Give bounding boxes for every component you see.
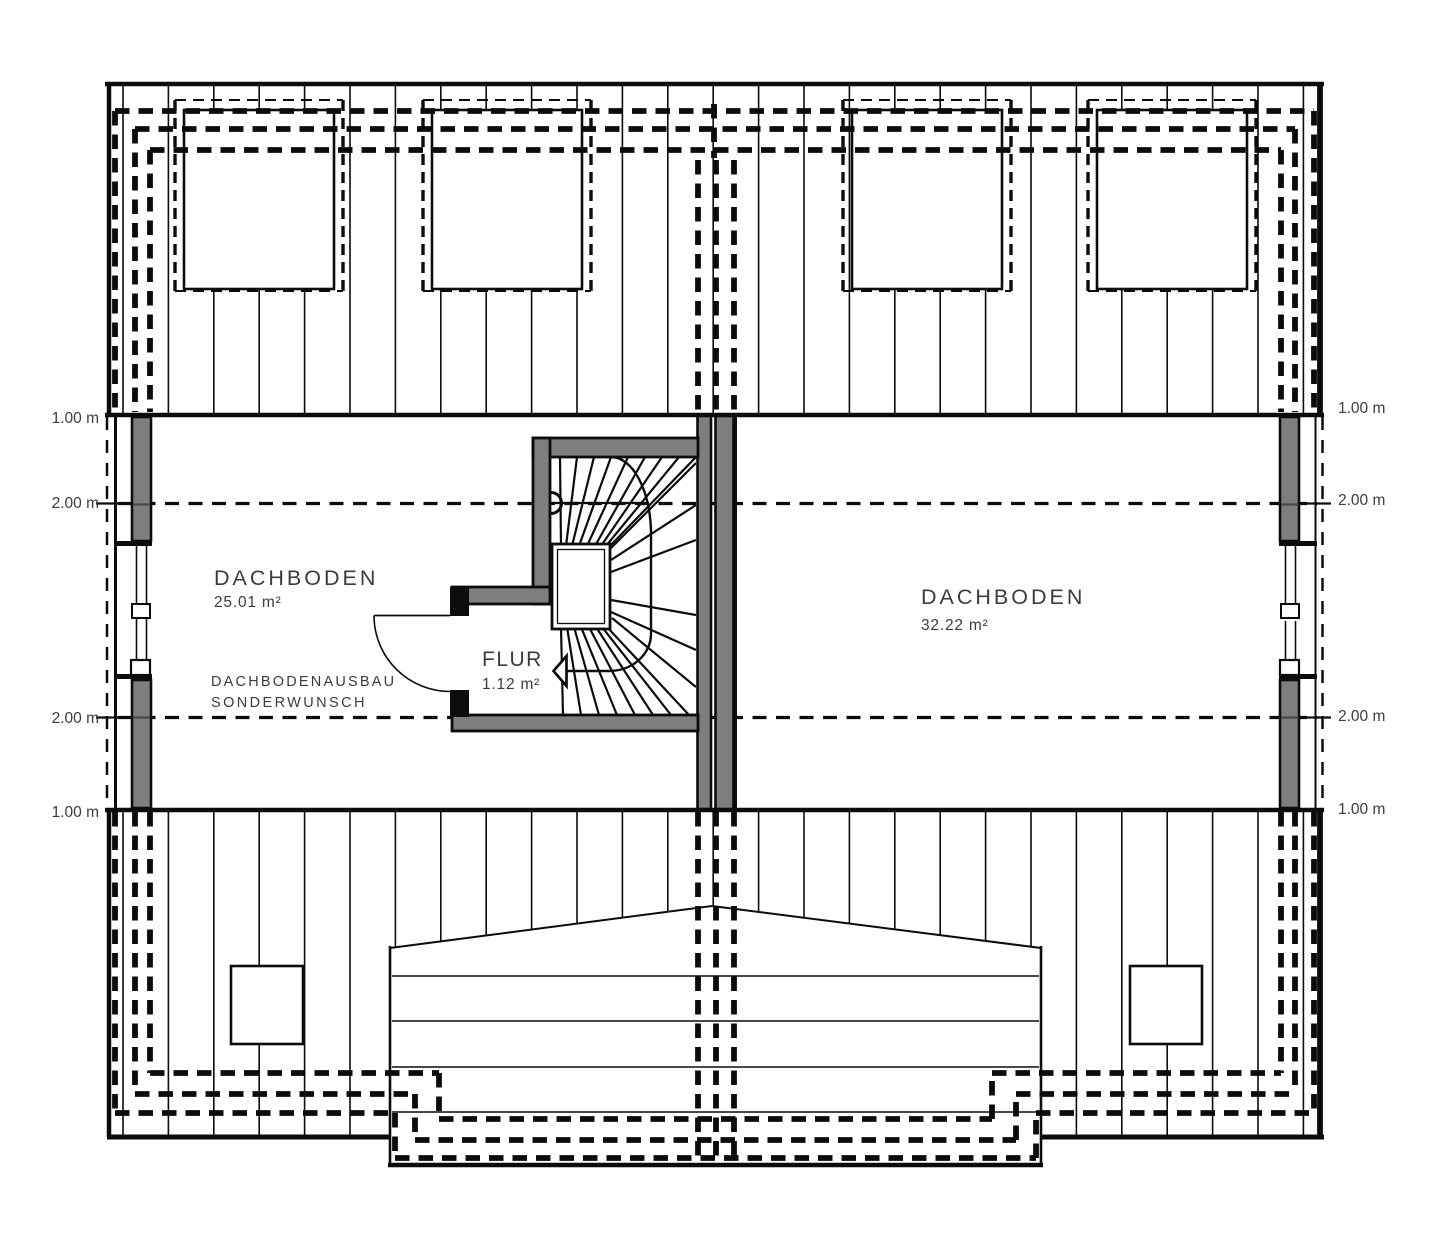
svg-text:1.00 m: 1.00 m [1338,801,1385,818]
svg-text:FLUR: FLUR [482,648,543,671]
svg-text:1.00 m: 1.00 m [52,804,99,821]
svg-text:1.00 m: 1.00 m [52,410,99,427]
svg-text:32.22 m²: 32.22 m² [921,617,989,634]
svg-text:2.00 m: 2.00 m [52,495,99,512]
svg-text:25.01 m²: 25.01 m² [214,594,282,611]
svg-text:1.12 m²: 1.12 m² [482,676,540,693]
svg-text:1.00 m: 1.00 m [1338,400,1385,417]
svg-text:SONDERWUNSCH: SONDERWUNSCH [211,695,367,711]
svg-text:2.00 m: 2.00 m [52,710,99,727]
svg-text:2.00 m: 2.00 m [1338,708,1385,725]
svg-text:DACHBODENAUSBAU: DACHBODENAUSBAU [211,674,396,690]
svg-text:2.00 m: 2.00 m [1338,492,1385,509]
svg-text:DACHBODEN: DACHBODEN [921,585,1085,609]
svg-text:DACHBODEN: DACHBODEN [214,566,378,590]
